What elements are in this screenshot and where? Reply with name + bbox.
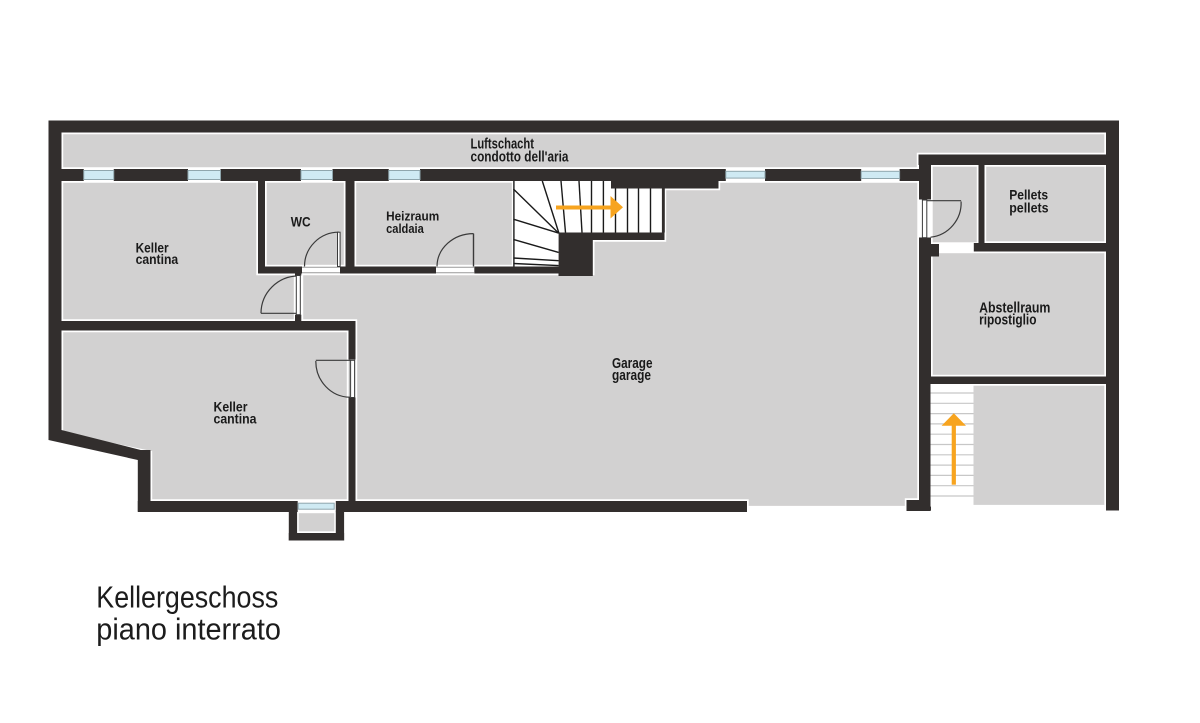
svg-text:caldaia: caldaia [386,222,425,236]
svg-text:garage: garage [612,368,651,384]
svg-text:cantina: cantina [214,411,257,427]
svg-text:WC: WC [291,213,311,229]
svg-text:piano interrato: piano interrato [96,612,281,647]
svg-text:cantina: cantina [136,251,179,267]
svg-text:ripostiglio: ripostiglio [979,312,1037,328]
svg-text:condotto dell'aria: condotto dell'aria [471,149,570,166]
svg-text:Kellergeschoss: Kellergeschoss [96,580,278,615]
svg-text:pellets: pellets [1009,200,1049,216]
